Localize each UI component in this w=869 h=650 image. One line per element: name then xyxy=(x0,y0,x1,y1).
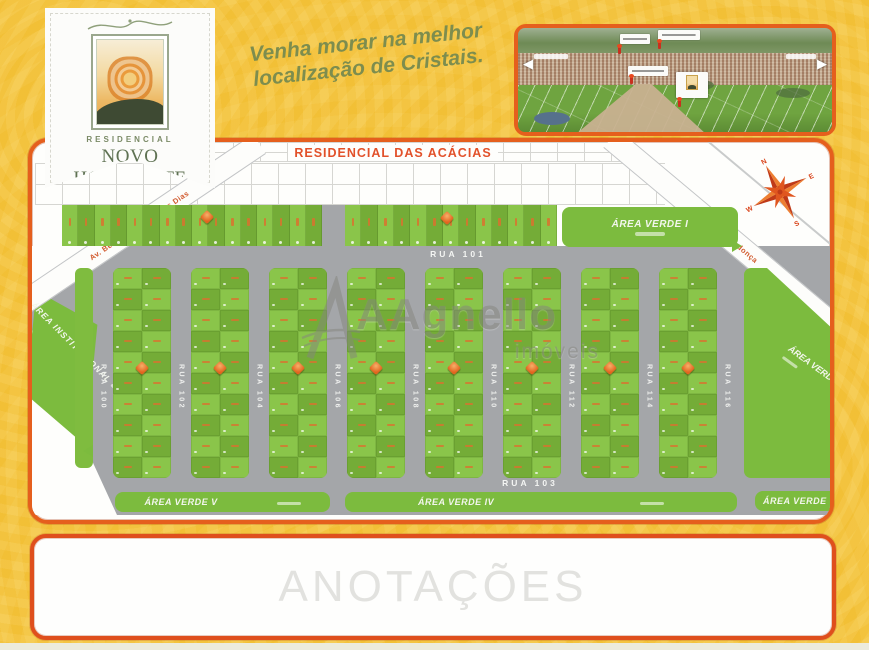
lot xyxy=(113,331,142,352)
lot xyxy=(113,268,142,289)
lot xyxy=(376,373,405,394)
lot xyxy=(688,394,717,415)
lot xyxy=(113,436,142,457)
lot xyxy=(306,205,322,246)
lot xyxy=(376,331,405,352)
lot xyxy=(113,289,142,310)
sunrise-art xyxy=(96,39,164,125)
lot xyxy=(503,331,532,352)
map-pin-icon xyxy=(678,100,681,107)
lot-row xyxy=(345,205,557,246)
area-label-text: ÁREA VERDE V xyxy=(144,497,217,507)
lot xyxy=(454,457,483,478)
street-label-vertical: RUA 102 xyxy=(171,322,191,452)
lot xyxy=(659,310,688,331)
lot xyxy=(532,331,561,352)
lot xyxy=(532,415,561,436)
lot xyxy=(220,310,249,331)
lot xyxy=(127,205,143,246)
street-gap xyxy=(322,205,345,246)
lot xyxy=(503,415,532,436)
lot xyxy=(454,436,483,457)
photo-callout xyxy=(628,66,668,76)
lot xyxy=(113,457,142,478)
lot xyxy=(503,310,532,331)
photo-side-label xyxy=(534,54,568,59)
lot xyxy=(361,205,377,246)
lot xyxy=(142,268,171,289)
lot xyxy=(298,331,327,352)
lot xyxy=(610,436,639,457)
lot xyxy=(142,457,171,478)
lot xyxy=(659,415,688,436)
lot xyxy=(425,331,454,352)
slogan-text: Venha morar na melhor localização de Cri… xyxy=(210,14,524,97)
lot xyxy=(492,205,508,246)
lot xyxy=(376,436,405,457)
green-arrow-icon xyxy=(83,445,93,457)
lot xyxy=(532,289,561,310)
svg-text:N: N xyxy=(760,158,768,167)
lot xyxy=(688,289,717,310)
lot xyxy=(425,268,454,289)
lot xyxy=(347,394,376,415)
lot xyxy=(269,415,298,436)
photo-side-label xyxy=(786,54,816,59)
lot xyxy=(269,457,298,478)
lot xyxy=(298,268,327,289)
lot xyxy=(581,436,610,457)
lot xyxy=(454,394,483,415)
lot xyxy=(257,205,273,246)
lot xyxy=(503,457,532,478)
map-pin-icon xyxy=(618,47,621,54)
logo-emblem xyxy=(91,34,169,130)
area-verde-5: ÁREA VERDE V xyxy=(115,492,330,512)
lot xyxy=(610,457,639,478)
lot xyxy=(454,415,483,436)
lot xyxy=(508,205,524,246)
lot xyxy=(659,268,688,289)
lot xyxy=(290,205,306,246)
map-pin-icon xyxy=(630,77,633,84)
lot xyxy=(95,205,111,246)
lot xyxy=(476,205,492,246)
photo-arrow-right-icon: ▶ xyxy=(817,56,827,72)
lot xyxy=(425,415,454,436)
svg-text:S: S xyxy=(793,220,801,229)
photo-pond xyxy=(534,112,570,125)
lot xyxy=(610,373,639,394)
lot xyxy=(269,373,298,394)
lot xyxy=(425,394,454,415)
lot xyxy=(425,289,454,310)
lot xyxy=(269,331,298,352)
lot xyxy=(269,289,298,310)
photo-callout-logo xyxy=(676,72,708,98)
lot xyxy=(610,415,639,436)
lot xyxy=(688,457,717,478)
hill-shape xyxy=(96,99,164,124)
lot xyxy=(113,394,142,415)
lot xyxy=(581,457,610,478)
lot xyxy=(610,310,639,331)
lot xyxy=(454,268,483,289)
lot xyxy=(376,268,405,289)
lot xyxy=(427,205,443,246)
lot xyxy=(269,394,298,415)
lot xyxy=(347,310,376,331)
lot xyxy=(347,331,376,352)
lot xyxy=(142,394,171,415)
site-map-canvas: RESIDENCIAL DAS ACÁCIAS ÁREA INSTITUCION… xyxy=(32,142,830,520)
lot xyxy=(347,289,376,310)
lot xyxy=(454,331,483,352)
lot xyxy=(191,268,220,289)
lot xyxy=(532,268,561,289)
lot xyxy=(376,415,405,436)
lot xyxy=(610,331,639,352)
area-label-text: ÁREA VERDE I xyxy=(612,219,689,230)
lot xyxy=(610,268,639,289)
lot xyxy=(111,205,127,246)
lot xyxy=(454,373,483,394)
street-label-vertical: RUA 116 xyxy=(717,322,737,452)
photo-trees xyxy=(776,88,810,98)
lot xyxy=(503,373,532,394)
lot-row xyxy=(62,205,322,246)
lot xyxy=(191,289,220,310)
svg-text:W: W xyxy=(745,205,754,214)
lot xyxy=(532,457,561,478)
lot xyxy=(503,289,532,310)
lot xyxy=(269,268,298,289)
lot xyxy=(581,415,610,436)
lot xyxy=(113,373,142,394)
lot xyxy=(143,205,159,246)
lot xyxy=(220,268,249,289)
mini-emblem-icon xyxy=(686,75,698,90)
lot xyxy=(394,205,410,246)
lot xyxy=(688,331,717,352)
lot xyxy=(610,289,639,310)
lot xyxy=(142,373,171,394)
lot xyxy=(425,373,454,394)
logo-flourish-icon xyxy=(82,17,178,33)
lot xyxy=(298,289,327,310)
lot xyxy=(524,205,540,246)
lot xyxy=(220,415,249,436)
lot xyxy=(454,310,483,331)
photo-arrow-left-icon: ◀ xyxy=(523,56,533,72)
lot xyxy=(503,394,532,415)
lot xyxy=(220,373,249,394)
lot xyxy=(176,205,192,246)
lot xyxy=(532,394,561,415)
area-size-text xyxy=(782,356,798,369)
lot xyxy=(191,394,220,415)
page-footer-strip xyxy=(0,643,869,650)
lot xyxy=(610,394,639,415)
lot xyxy=(269,310,298,331)
district-label: RESIDENCIAL DAS ACÁCIAS xyxy=(288,145,498,161)
lot xyxy=(298,436,327,457)
street-label-vertical: RUA 112 xyxy=(561,322,581,452)
lot xyxy=(454,289,483,310)
lot xyxy=(142,310,171,331)
lot xyxy=(345,205,361,246)
lot xyxy=(659,373,688,394)
green-arrow-icon xyxy=(732,240,742,252)
lot xyxy=(220,331,249,352)
lot xyxy=(241,205,257,246)
lot xyxy=(659,289,688,310)
street-label: RUA 101 xyxy=(393,249,523,259)
lot xyxy=(220,289,249,310)
lot xyxy=(581,394,610,415)
area-size-text xyxy=(640,502,664,505)
lot xyxy=(532,373,561,394)
lot xyxy=(160,205,176,246)
lot xyxy=(191,415,220,436)
street-label-vertical: RUA 106 xyxy=(327,322,347,452)
lot xyxy=(459,205,475,246)
logo-tagline: RESIDENCIAL xyxy=(45,135,215,144)
area-size-text xyxy=(277,502,301,505)
lot xyxy=(659,394,688,415)
sun-icon xyxy=(124,72,137,85)
site-map: RESIDENCIAL DAS ACÁCIAS ÁREA INSTITUCION… xyxy=(28,138,834,524)
lot xyxy=(378,205,394,246)
lot xyxy=(142,415,171,436)
street-label-vertical: RUA 104 xyxy=(249,322,269,452)
lot xyxy=(688,310,717,331)
street-label-vertical: RUA 110 xyxy=(483,322,503,452)
lot xyxy=(273,205,289,246)
area-verde-4: ÁREA VERDE IV xyxy=(345,492,737,512)
area-label-text: ÁREA VERDE xyxy=(781,344,830,437)
lot xyxy=(142,331,171,352)
area-label-text: ÁREA VERDE IV xyxy=(418,497,494,507)
lot xyxy=(410,205,426,246)
lot xyxy=(225,205,241,246)
street-label: RUA 103 xyxy=(465,478,595,488)
area-label-text: ÁREA VERDE xyxy=(763,496,827,506)
lot xyxy=(376,310,405,331)
street-label-vertical: RUA 108 xyxy=(405,322,425,452)
lot xyxy=(541,205,557,246)
lot xyxy=(503,268,532,289)
brochure-page: RESIDENCIAL NOVO HORIZONTE Venha morar n… xyxy=(0,0,869,650)
lot xyxy=(581,310,610,331)
lot xyxy=(532,436,561,457)
lot xyxy=(269,436,298,457)
lot xyxy=(425,310,454,331)
lot xyxy=(659,331,688,352)
lot xyxy=(347,415,376,436)
lot xyxy=(62,205,78,246)
lot xyxy=(191,457,220,478)
lot xyxy=(191,331,220,352)
lot xyxy=(532,310,561,331)
lot xyxy=(376,394,405,415)
aerial-photo: ◀ ▶ xyxy=(514,24,836,136)
lot xyxy=(688,415,717,436)
lot-strip xyxy=(75,268,93,468)
lot xyxy=(298,457,327,478)
annotations-box: ANOTAÇÕES xyxy=(30,534,836,640)
lot xyxy=(503,436,532,457)
lot xyxy=(347,373,376,394)
photo-callout xyxy=(620,34,650,44)
lot xyxy=(78,205,94,246)
lot xyxy=(688,373,717,394)
lot xyxy=(113,310,142,331)
street-label-vertical: RUA 114 xyxy=(639,322,659,452)
lot xyxy=(220,394,249,415)
lot xyxy=(220,457,249,478)
lot xyxy=(347,268,376,289)
lot xyxy=(659,457,688,478)
lot xyxy=(425,457,454,478)
lot xyxy=(298,415,327,436)
area-verde-1: ÁREA VERDE I xyxy=(562,207,738,247)
lot xyxy=(298,394,327,415)
area-verde-3: ÁREA VERDE xyxy=(755,491,830,511)
lot xyxy=(142,436,171,457)
street-label-vertical: RUA 100 xyxy=(93,322,113,452)
lot xyxy=(688,436,717,457)
lot xyxy=(581,289,610,310)
map-pin-icon xyxy=(658,42,661,49)
lot xyxy=(113,415,142,436)
annotations-label: ANOTAÇÕES xyxy=(278,562,587,612)
existing-lots-row xyxy=(35,163,665,205)
lot xyxy=(191,436,220,457)
lot xyxy=(425,436,454,457)
lot xyxy=(208,205,224,246)
aerial-photo-image: ◀ ▶ xyxy=(518,28,832,132)
lot xyxy=(347,457,376,478)
lot xyxy=(376,457,405,478)
svg-text:E: E xyxy=(808,173,816,182)
lot xyxy=(298,310,327,331)
lot xyxy=(688,268,717,289)
lot xyxy=(220,436,249,457)
lot xyxy=(347,436,376,457)
photo-callout xyxy=(658,30,700,40)
lot xyxy=(142,289,171,310)
lot xyxy=(376,289,405,310)
lot xyxy=(191,310,220,331)
lot xyxy=(581,268,610,289)
area-size-text xyxy=(635,232,665,236)
lot xyxy=(191,373,220,394)
lot xyxy=(659,436,688,457)
lot xyxy=(581,331,610,352)
lot xyxy=(581,373,610,394)
lot xyxy=(298,373,327,394)
